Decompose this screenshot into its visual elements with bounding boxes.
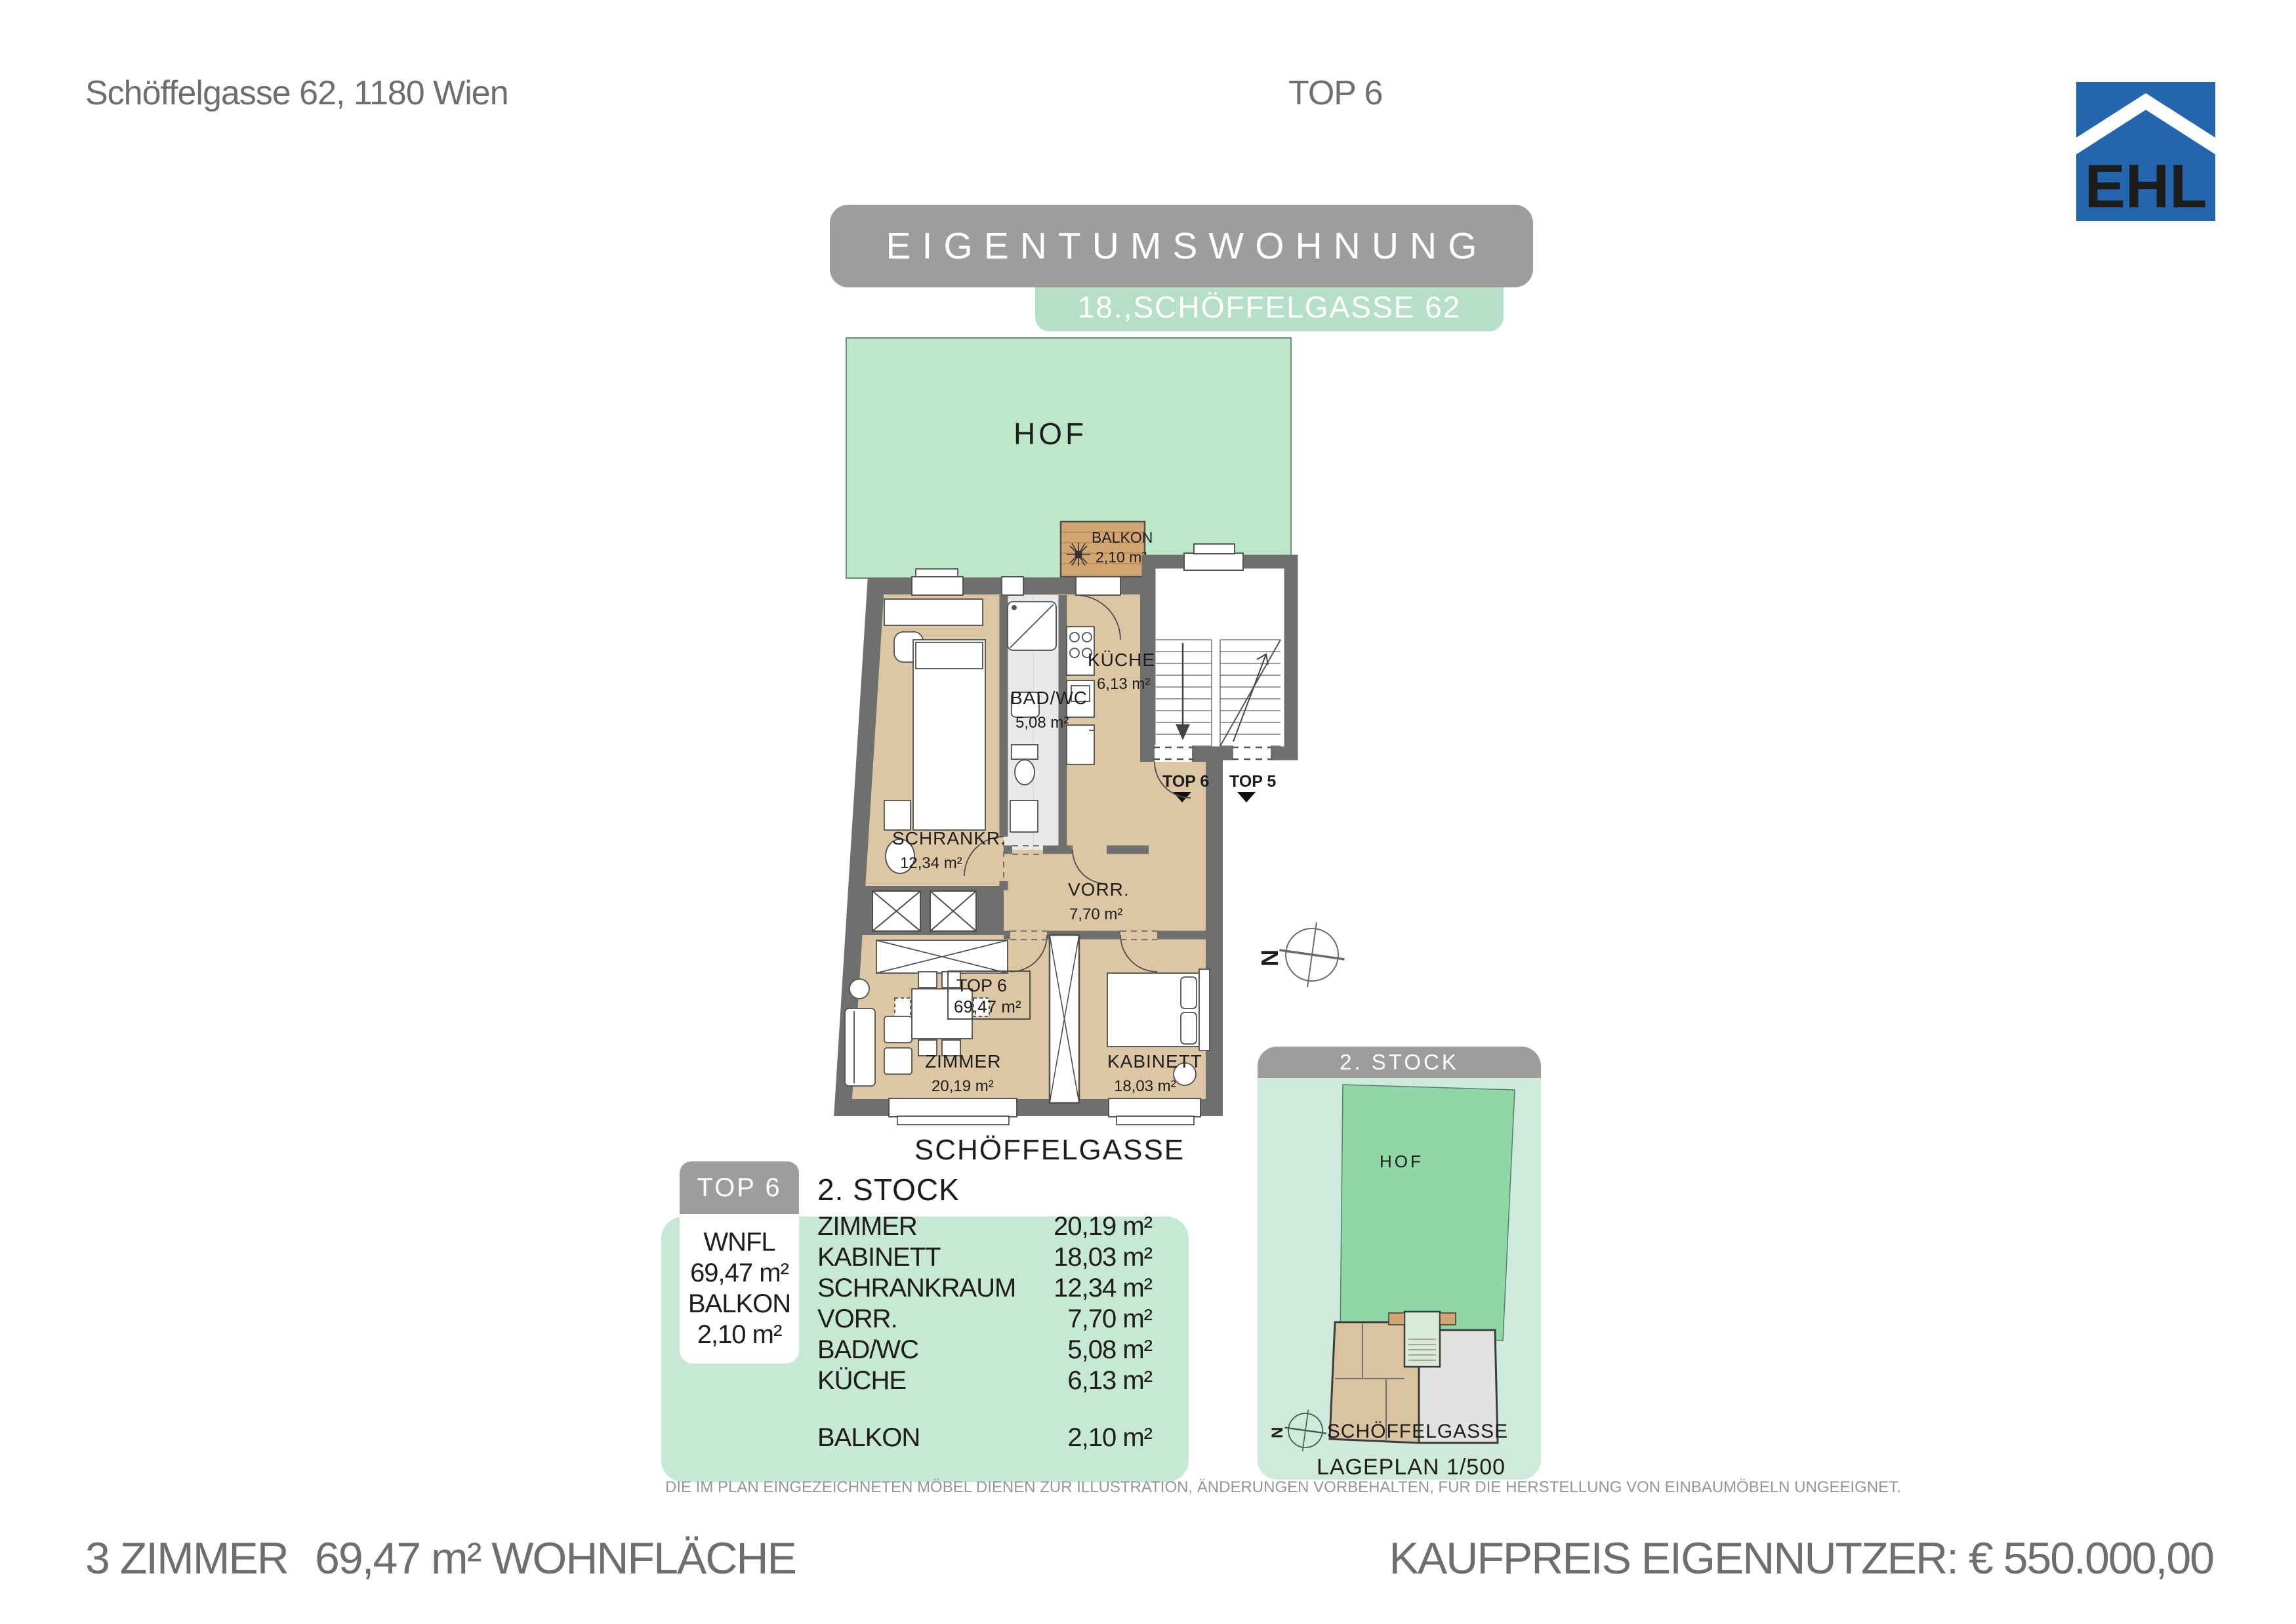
shaft bbox=[1050, 935, 1079, 1103]
row-value: 18,03 m² bbox=[1054, 1242, 1152, 1273]
kabinett-area: 18,03 m² bbox=[1114, 1077, 1176, 1095]
stair-top6-label: TOP 6 bbox=[1162, 772, 1209, 791]
mini-scale-label: LAGEPLAN 1/500 bbox=[1317, 1455, 1506, 1480]
compass-icon: N bbox=[1256, 918, 1349, 992]
row-label: ZIMMER bbox=[817, 1211, 917, 1242]
card-balkon-value: 2,10 m² bbox=[697, 1320, 782, 1350]
row-value: 7,70 m² bbox=[1067, 1304, 1152, 1335]
table-row-balkon: BALKON 2,10 m² bbox=[817, 1423, 1152, 1453]
row-value: 6,13 m² bbox=[1067, 1365, 1152, 1396]
top5-entry-gap bbox=[1233, 745, 1271, 762]
disclaimer-text: DIE IM PLAN EINGEZEICHNETEN MÖBEL DIENEN… bbox=[665, 1478, 1901, 1497]
summary-unit-pill-text: TOP 6 bbox=[697, 1173, 781, 1203]
plant-icon bbox=[1067, 543, 1090, 566]
summary-rows: ZIMMER 20,19 m² KABINETT 18,03 m² SCHRAN… bbox=[817, 1211, 1152, 1453]
logo-text: EHL bbox=[2085, 152, 2207, 220]
card-balkon-label: BALKON bbox=[688, 1289, 790, 1320]
compass-n-label: N bbox=[1256, 949, 1283, 967]
stair-top5-label: TOP 5 bbox=[1229, 772, 1276, 791]
mini-compass-n: N bbox=[1269, 1427, 1286, 1438]
row-label: KABINETT bbox=[817, 1242, 941, 1273]
mini-hof-label: HOF bbox=[1380, 1152, 1424, 1171]
mini-compass-icon: N bbox=[1269, 1407, 1329, 1454]
bad-label: BAD/WC bbox=[1010, 688, 1088, 708]
row-label: KÜCHE bbox=[817, 1365, 906, 1396]
site-map-header-text: 2. STOCK bbox=[1340, 1050, 1459, 1075]
banner-title-text: EIGENTUMSWOHNUNG bbox=[875, 224, 1488, 268]
table-row: KÜCHE 6,13 m² bbox=[817, 1365, 1152, 1396]
row-label: VORR. bbox=[817, 1304, 897, 1335]
summary-floor-label: 2. STOCK bbox=[817, 1172, 960, 1207]
balkon-area: 2,10 m² bbox=[1096, 549, 1147, 566]
address-title: Schöffelgasse 62, 1180 Wien bbox=[85, 73, 508, 113]
table-row: VORR. 7,70 m² bbox=[817, 1304, 1152, 1335]
footer-rooms: 3 ZIMMER bbox=[85, 1533, 288, 1584]
hof-label: HOF bbox=[1014, 417, 1087, 451]
row-value: 5,08 m² bbox=[1067, 1335, 1152, 1365]
kueche-label: KÜCHE bbox=[1088, 650, 1155, 670]
footer-price: KAUFPREIS EIGENNUTZER: € 550.000,00 bbox=[1389, 1533, 2214, 1584]
row-label: BALKON bbox=[817, 1423, 920, 1453]
banner-title: EIGENTUMSWOHNUNG bbox=[830, 205, 1533, 287]
page: Schöffelgasse 62, 1180 Wien TOP 6 EHL 18… bbox=[0, 0, 2296, 1624]
kabinett-label: KABINETT bbox=[1107, 1051, 1202, 1072]
schrank-label: SCHRANKR. bbox=[892, 828, 1006, 848]
bad-area: 5,08 m² bbox=[1015, 714, 1069, 732]
row-value: 20,19 m² bbox=[1054, 1211, 1152, 1242]
street-label: SCHÖFFELGASSE bbox=[914, 1134, 1185, 1166]
mini-hof-area bbox=[1340, 1085, 1515, 1341]
ehl-logo-icon: EHL bbox=[2076, 82, 2215, 221]
top6-entry-gap bbox=[1155, 745, 1192, 762]
site-map-svg: HOF bbox=[1258, 1078, 1541, 1480]
kueche-area: 6,13 m² bbox=[1097, 675, 1150, 693]
vorr-label: VORR. bbox=[1068, 879, 1130, 900]
unit-title: TOP 6 bbox=[1288, 73, 1382, 113]
footer-area: 69,47 m² WOHNFLÄCHE bbox=[315, 1533, 796, 1584]
row-label: BAD/WC bbox=[817, 1335, 918, 1365]
summary-unit-pill: TOP 6 bbox=[680, 1161, 799, 1214]
table-row: KABINETT 18,03 m² bbox=[817, 1242, 1152, 1273]
table-row: ZIMMER 20,19 m² bbox=[817, 1211, 1152, 1242]
ehl-logo: EHL bbox=[2076, 82, 2215, 221]
row-value: 12,34 m² bbox=[1054, 1273, 1152, 1304]
schrank-area: 12,34 m² bbox=[900, 854, 962, 872]
vorr-area: 7,70 m² bbox=[1069, 906, 1122, 923]
unit-box-line1: TOP 6 bbox=[956, 976, 1007, 995]
balcony: BALKON 2,10 m² bbox=[1061, 522, 1153, 577]
table-row: SCHRANKRAUM 12,34 m² bbox=[817, 1273, 1152, 1304]
zimmer-label: ZIMMER bbox=[925, 1051, 1001, 1072]
row-label: SCHRANKRAUM bbox=[817, 1273, 1015, 1304]
zimmer-area: 20,19 m² bbox=[932, 1077, 994, 1095]
banner-subtitle-text: 18.,SCHÖFFELGASSE 62 bbox=[1078, 289, 1462, 331]
summary-unit-card: WNFL 69,47 m² BALKON 2,10 m² bbox=[680, 1214, 799, 1364]
site-map-card: 2. STOCK HOF bbox=[1258, 1047, 1541, 1480]
wnfl-value: 69,47 m² bbox=[690, 1258, 789, 1289]
balkon-label: BALKON bbox=[1092, 529, 1153, 546]
unit-box-line2: 69,47 m² bbox=[954, 997, 1021, 1016]
row-value: 2,10 m² bbox=[1067, 1423, 1152, 1453]
top5-arrow-icon bbox=[1237, 792, 1256, 802]
wnfl-label: WNFL bbox=[703, 1227, 775, 1258]
site-map-header: 2. STOCK bbox=[1258, 1047, 1541, 1078]
table-row: BAD/WC 5,08 m² bbox=[817, 1335, 1152, 1365]
mini-street-label: SCHÖFFELGASSE bbox=[1327, 1421, 1508, 1442]
